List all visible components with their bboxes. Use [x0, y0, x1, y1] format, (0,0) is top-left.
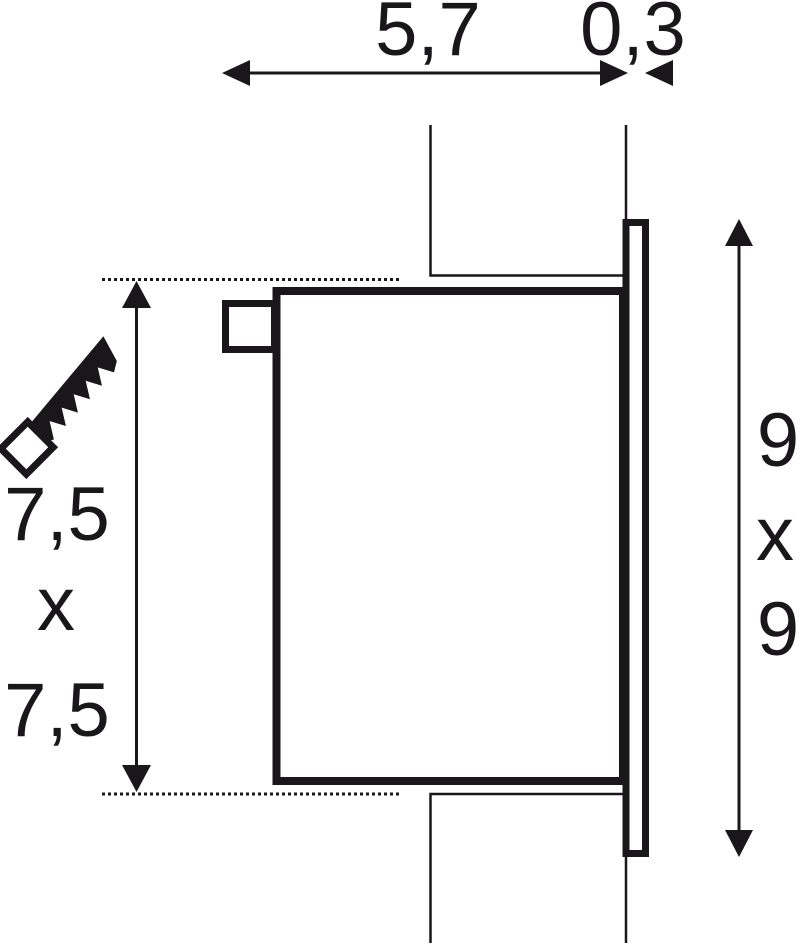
cutout-height-value: 7,5 [4, 668, 110, 753]
dimension-cutout: 7,5 x 7,5 [4, 281, 151, 792]
technical-dimension-drawing: 5,7 0,3 7,5 x 7,5 9 x 9 [0, 0, 800, 946]
outer-times: x [756, 492, 794, 577]
cutout-arrowhead-top [122, 281, 151, 308]
outer-arrowhead-top [725, 219, 753, 246]
depth-value: 5,7 [375, 0, 481, 72]
cutout-times: x [37, 562, 75, 647]
saw-icon [0, 336, 134, 474]
outer-width-value: 9 [757, 398, 799, 483]
cutout-width-value: 7,5 [4, 472, 110, 557]
housing-outline [277, 291, 624, 781]
dimension-depth: 5,7 [222, 0, 628, 86]
cutout-arrowhead-bottom [122, 765, 151, 792]
wall-recess-bottom-line [431, 794, 628, 943]
wall-recess-top-line [431, 125, 628, 276]
front-frame [626, 223, 646, 854]
dimension-outer-size: 9 x 9 [725, 219, 799, 857]
cable-entry-box [226, 304, 275, 350]
frame-thickness-value: 0,3 [580, 0, 686, 72]
depth-arrowhead-left [222, 60, 250, 86]
outer-arrowhead-bottom [725, 830, 753, 857]
outer-height-value: 9 [757, 587, 799, 672]
